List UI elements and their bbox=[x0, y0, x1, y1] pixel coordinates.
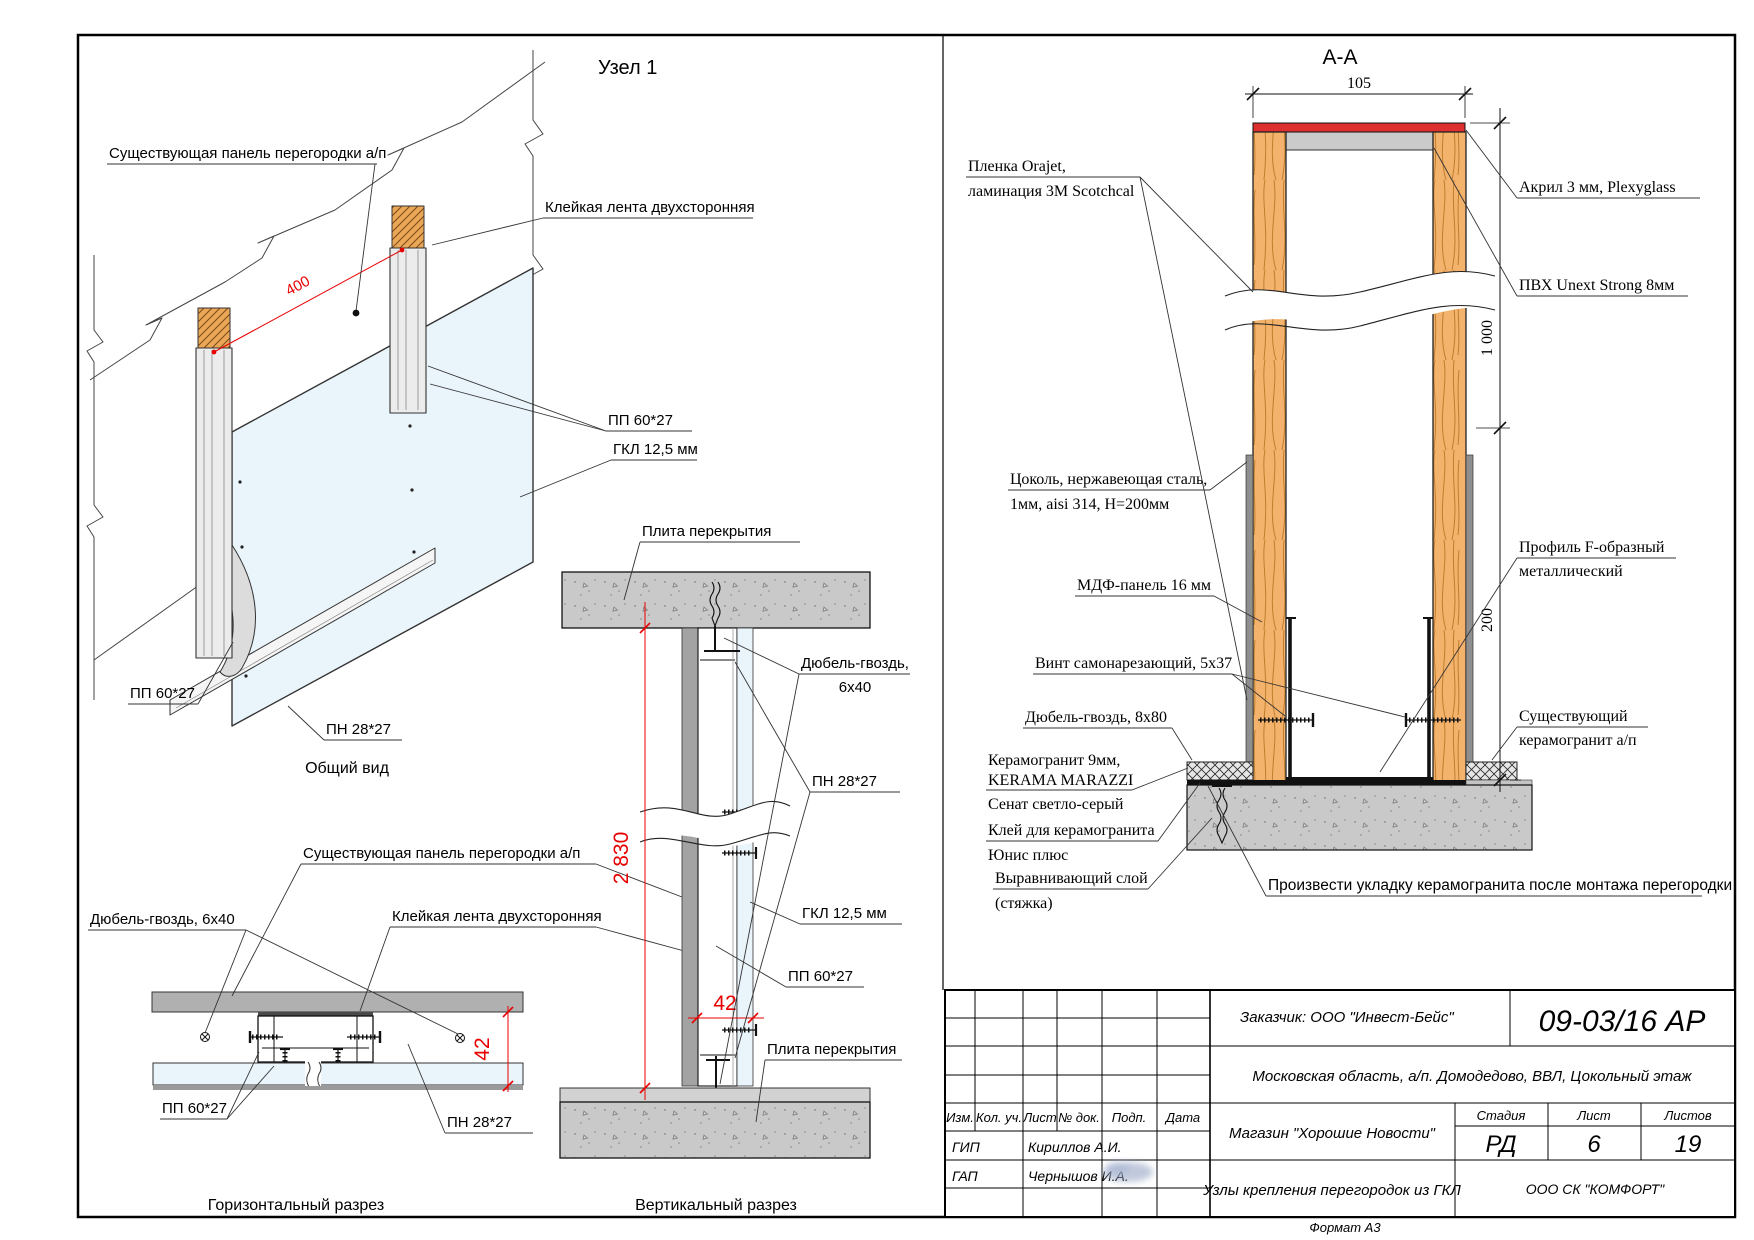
svg-text:2 830: 2 830 bbox=[610, 832, 633, 885]
dim-1000-200 bbox=[1470, 108, 1521, 792]
title-block: Изм. Кол. уч. Лист № док. Подп. Дата ГИП… bbox=[945, 990, 1735, 1235]
label-pp-left: ПП 60*27 bbox=[130, 685, 195, 702]
label-note: Произвести укладку керамогранита после м… bbox=[1268, 877, 1732, 894]
label-pp-right: ПП 60*27 bbox=[608, 412, 673, 429]
drawing-canvas: Узел 1 bbox=[0, 0, 1754, 1240]
label-pn-vs: ПН 28*27 bbox=[812, 773, 877, 790]
drawing-sheet: Узел 1 bbox=[0, 0, 1754, 1240]
label-ceramic-3: Сенат светло-серый bbox=[988, 796, 1124, 813]
label-ceramic-2: KERAMA MARAZZI bbox=[988, 772, 1133, 789]
tb-company: ООО СК "КОМФОРТ" bbox=[1526, 1181, 1666, 1197]
tb-doc-number: 09-03/16 АР bbox=[1539, 1005, 1706, 1038]
tb-project: Магазин "Хорошие Новости" bbox=[1229, 1125, 1436, 1142]
gkl-panel bbox=[232, 268, 533, 726]
node1-caption: Общий вид bbox=[305, 760, 390, 777]
label-existing-tile-1: Существующий bbox=[1519, 708, 1628, 725]
tb-sheets-label: Листов bbox=[1663, 1108, 1712, 1123]
tb-stage-value: РД bbox=[1485, 1131, 1516, 1158]
label-pn: ПН 28*27 bbox=[326, 721, 391, 738]
ceramic-tile-existing bbox=[1466, 762, 1517, 780]
tb-gap-label: ГАП bbox=[952, 1168, 979, 1184]
label-tape-2: Клейкая лента двухсторонняя bbox=[392, 908, 602, 925]
tb-sheet-label: Лист bbox=[1576, 1108, 1611, 1123]
leader-dot bbox=[353, 310, 360, 317]
dim-1000-text: 1 000 bbox=[1479, 320, 1496, 356]
dim-200-text: 200 bbox=[1479, 608, 1496, 632]
horizontal-section-caption: Горизонтальный разрез bbox=[208, 1197, 384, 1214]
tb-format: Формат А3 bbox=[1309, 1220, 1381, 1235]
screed-band bbox=[560, 1088, 870, 1102]
node1-title: Узел 1 bbox=[598, 57, 657, 79]
mdf-strip-left bbox=[1246, 455, 1253, 782]
pvc-cap bbox=[1286, 132, 1434, 150]
gkl-strip bbox=[737, 628, 753, 1086]
tb-col-kol: Кол. уч. bbox=[976, 1110, 1022, 1125]
substrate-line bbox=[153, 1086, 523, 1090]
wall-break-left bbox=[87, 255, 103, 700]
label-slab-top: Плита перекрытия bbox=[642, 523, 771, 540]
wood-stud-right bbox=[1433, 132, 1466, 782]
profile-strip bbox=[698, 628, 737, 1086]
label-dowel-line1: Дюбель-гвоздь, bbox=[801, 655, 909, 672]
tb-col-izm: Изм. bbox=[946, 1110, 974, 1125]
vertical-section-caption: Вертикальный разрез bbox=[635, 1197, 797, 1214]
label-mdf: МДФ-панель 16 мм bbox=[1077, 577, 1211, 594]
label-dowel-line2: 6х40 bbox=[839, 679, 872, 696]
label-pp-vs: ПП 60*27 bbox=[788, 968, 853, 985]
section-aa-title: А-А bbox=[1322, 46, 1357, 69]
tb-gip-name: Кириллов А.И. bbox=[1028, 1139, 1122, 1155]
label-glue-2: Юнис плюс bbox=[988, 847, 1068, 864]
horizontal-section: 42 Дюбель-гвоздь, 6х40 Существующая пане… bbox=[88, 845, 699, 1214]
label-profile-f-2: металлический bbox=[1519, 563, 1623, 580]
label-profile-f-1: Профиль F-образный bbox=[1519, 539, 1665, 556]
screed-slab bbox=[1187, 785, 1532, 850]
vertical-section: 2 830 42 Плита перекрытия Дюбель-гв bbox=[560, 523, 910, 1214]
label-dowel-6x40: Дюбель-гвоздь, 6х40 bbox=[90, 911, 235, 928]
label-slab-bottom: Плита перекрытия bbox=[767, 1041, 896, 1058]
label-film-2: ламинация 3M Scotchcal bbox=[968, 183, 1135, 200]
existing-panel-band bbox=[152, 992, 523, 1012]
dim-105-text: 105 bbox=[1347, 75, 1371, 92]
node1-view: Узел 1 bbox=[87, 50, 755, 777]
signature-blur bbox=[1103, 1162, 1153, 1182]
acrylic-cap bbox=[1253, 123, 1465, 132]
label-existing-panel: Существующая панель перегородки а/п bbox=[109, 145, 386, 162]
label-tape: Клейкая лента двухсторонняя bbox=[545, 199, 755, 216]
label-leveling-1: Выравнивающий слой bbox=[995, 870, 1148, 887]
label-screw-5x37: Винт самонарезающий, 5х37 bbox=[1035, 655, 1232, 672]
dowel-mark-right bbox=[456, 1034, 465, 1043]
mdf-strip-right bbox=[1466, 455, 1473, 782]
label-plinth-1: Цоколь, нержавеющая сталь, bbox=[1010, 471, 1207, 488]
tb-col-data: Дата bbox=[1164, 1110, 1200, 1125]
ceramic-tile-new bbox=[1187, 762, 1253, 780]
tb-gip-label: ГИП bbox=[952, 1139, 981, 1155]
existing-panel-strip bbox=[682, 628, 698, 1086]
label-pp-hs: ПП 60*27 bbox=[162, 1100, 227, 1117]
label-film-1: Пленка Orajet, bbox=[968, 158, 1066, 175]
tb-sheets-value: 19 bbox=[1675, 1131, 1702, 1158]
glue-layer bbox=[1187, 780, 1466, 785]
dim-400: 400 bbox=[212, 248, 405, 355]
tb-location: Московская область, а/п. Домодедово, ВВЛ… bbox=[1252, 1068, 1692, 1085]
left-stud bbox=[196, 308, 232, 658]
dim-2830: 2 830 bbox=[610, 602, 650, 1100]
label-acrylic: Акрил 3 мм, Plexyglass bbox=[1519, 179, 1676, 196]
label-pn-hs: ПН 28*27 bbox=[447, 1114, 512, 1131]
tb-col-doc: № док. bbox=[1058, 1110, 1100, 1125]
label-existing-tile-2: керамогранит а/п bbox=[1519, 732, 1637, 749]
right-stud bbox=[390, 206, 426, 413]
f-profile bbox=[1286, 618, 1433, 782]
svg-text:42: 42 bbox=[471, 1037, 494, 1060]
label-dowel-8x80: Дюбель-гвоздь, 8х80 bbox=[1025, 709, 1167, 726]
svg-text:42: 42 bbox=[713, 992, 736, 1015]
label-pvc: ПВХ Unext Strong 8мм bbox=[1519, 277, 1674, 294]
tb-customer: Заказчик: ООО "Инвест-Бейс" bbox=[1240, 1009, 1454, 1026]
section-aa: А-А 105 bbox=[966, 46, 1732, 912]
tb-drawing-name: Узлы крепления перегородок из ГКЛ bbox=[1202, 1182, 1461, 1199]
label-gkl: ГКЛ 12,5 мм bbox=[613, 441, 698, 458]
profile-box bbox=[258, 1016, 373, 1062]
label-leveling-2: (стяжка) bbox=[995, 895, 1053, 912]
label-plinth-2: 1мм, aisi 314, Н=200мм bbox=[1010, 496, 1169, 513]
gkl-band bbox=[153, 1063, 523, 1085]
slab-bottom bbox=[560, 1102, 870, 1158]
label-existing-panel-2: Существующая панель перегородки а/п bbox=[303, 845, 580, 862]
wood-stud-left bbox=[1253, 132, 1286, 782]
svg-text:400: 400 bbox=[283, 273, 313, 300]
dowel-mark-left bbox=[201, 1033, 210, 1042]
label-gkl-vs: ГКЛ 12,5 мм bbox=[802, 905, 887, 922]
label-ceramic-1: Керамогранит 9мм, bbox=[988, 752, 1120, 769]
label-glue-1: Клей для керамогранита bbox=[988, 822, 1155, 839]
tb-stage-label: Стадия bbox=[1477, 1108, 1526, 1123]
tb-sheet-value: 6 bbox=[1587, 1131, 1601, 1158]
tb-col-list: Лист bbox=[1022, 1110, 1057, 1125]
tb-col-podp: Подп. bbox=[1112, 1110, 1147, 1125]
